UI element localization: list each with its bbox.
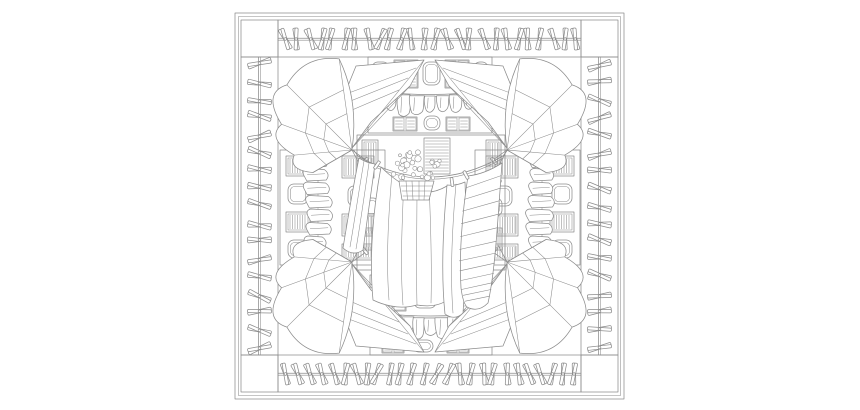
line-art-canvas xyxy=(0,0,860,410)
billowing-sheet-fan xyxy=(435,58,586,172)
scarf-artwork xyxy=(0,0,860,410)
